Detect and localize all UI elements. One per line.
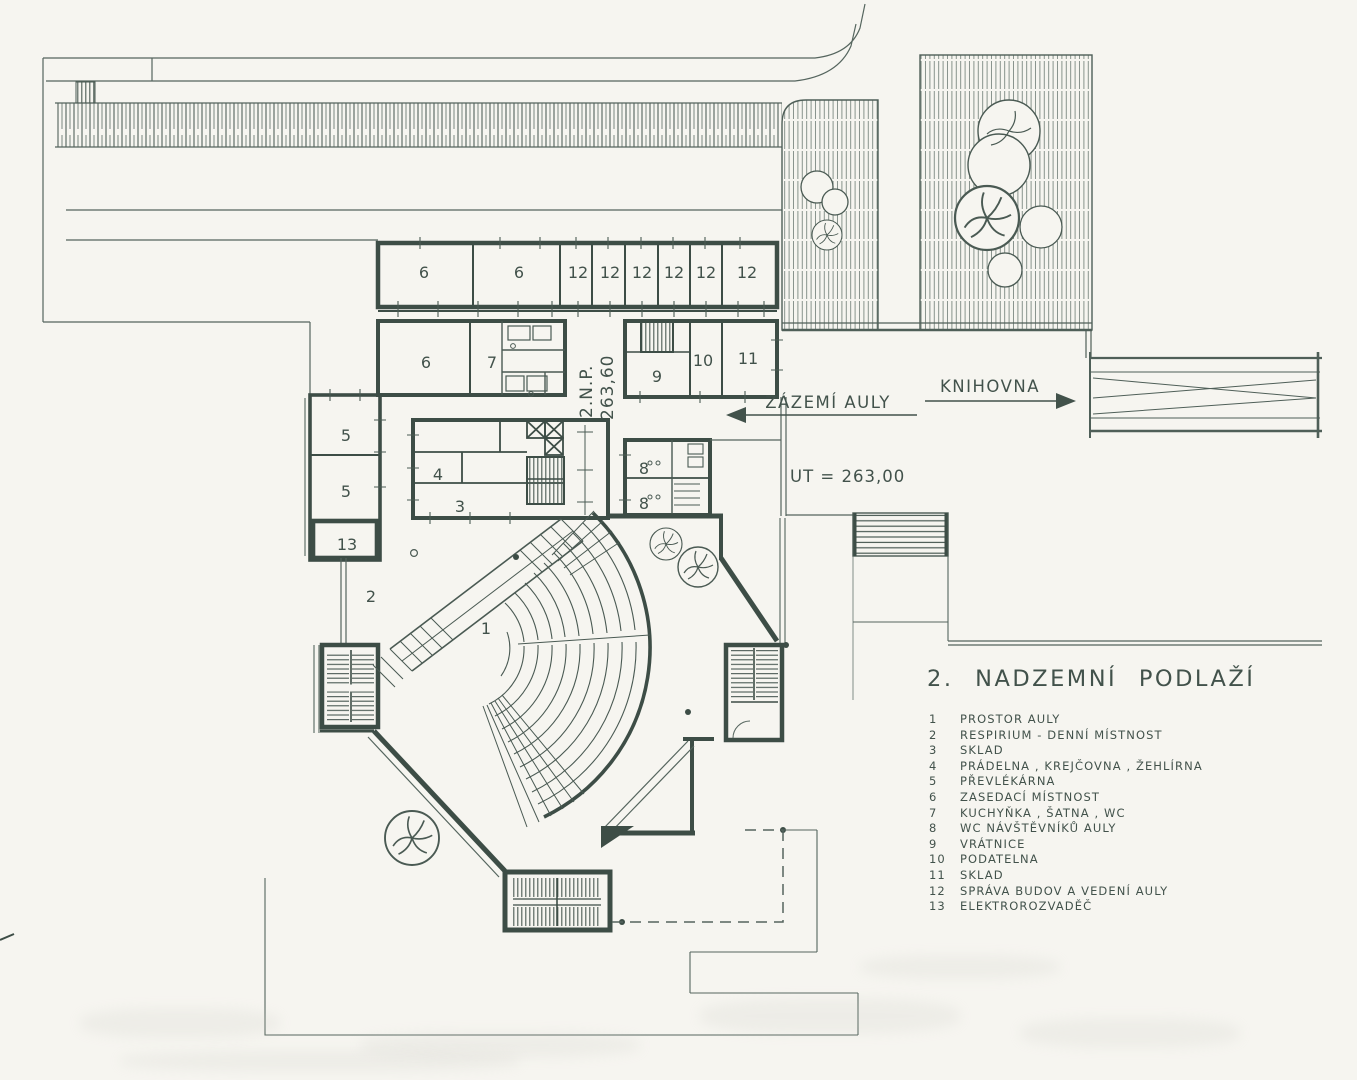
room-number: 10 xyxy=(693,351,713,370)
legend-number: 12 xyxy=(929,884,960,900)
floor-plan-drawing: 2.N.P. 263,60 ZÁZEMÍ AULY KNIHOVNA UT = … xyxy=(0,0,1357,1080)
room-number: 12 xyxy=(600,263,620,282)
room-number: 6 xyxy=(419,263,429,282)
legend-label: PŘEVLÉKÁRNA xyxy=(960,774,1056,790)
road-hatch-strip xyxy=(55,103,782,147)
floor-plan-sheet: 2.N.P. 263,60 ZÁZEMÍ AULY KNIHOVNA UT = … xyxy=(0,0,1357,1080)
wc-block xyxy=(619,440,710,515)
aula-planting xyxy=(385,528,789,925)
legend-number: 7 xyxy=(929,806,960,822)
scan-noise xyxy=(80,1008,280,1038)
room-number: 12 xyxy=(696,263,716,282)
scan-noise xyxy=(860,955,1060,979)
library-bridge xyxy=(1090,352,1322,438)
room-number: 2 xyxy=(366,587,376,606)
room-number: 5 xyxy=(341,482,351,501)
legend-item: 2RESPIRIUM - DENNÍ MÍSTNOST xyxy=(929,728,1203,744)
legend-label: RESPIRIUM - DENNÍ MÍSTNOST xyxy=(960,728,1163,744)
legend-item: 7KUCHYŇKA , ŠATNA , WC xyxy=(929,806,1203,822)
entrance-steps xyxy=(853,513,948,556)
legend-item: 1PROSTOR AULY xyxy=(929,712,1203,728)
room-number: 3 xyxy=(455,497,465,516)
arrow-right-icon xyxy=(1056,393,1076,409)
legend-number: 6 xyxy=(929,790,960,806)
legend: 1PROSTOR AULY 2RESPIRIUM - DENNÍ MÍSTNOS… xyxy=(929,712,1203,915)
scan-noise xyxy=(1020,1018,1240,1048)
room-number: 6 xyxy=(421,353,431,372)
room-number: 13 xyxy=(337,535,357,554)
legend-item: 8WC NÁVŠTĚVNÍKŮ AULY xyxy=(929,821,1203,837)
terrain-level-label: UT = 263,00 xyxy=(790,467,905,486)
scan-noise xyxy=(120,1050,520,1072)
block-6-7 xyxy=(378,321,565,396)
legend-item: 9VRÁTNICE xyxy=(929,837,1203,853)
legend-label: WC NÁVŠTĚVNÍKŮ AULY xyxy=(960,821,1117,837)
legend-number: 5 xyxy=(929,774,960,790)
legend-number: 2 xyxy=(929,728,960,744)
page-title: 2. NADZEMNÍ PODLAŽÍ xyxy=(927,666,1255,692)
legend-item: 6ZASEDACÍ MÍSTNOST xyxy=(929,790,1203,806)
legend-item: 3SKLAD xyxy=(929,743,1203,759)
room-number: 4 xyxy=(433,465,443,484)
room-number: 9 xyxy=(652,367,662,386)
legend-item: 5PŘEVLÉKÁRNA xyxy=(929,774,1203,790)
legend-label: PROSTOR AULY xyxy=(960,712,1060,728)
legend-label: KUCHYŇKA , ŠATNA , WC xyxy=(960,806,1126,822)
legend-label: SKLAD xyxy=(960,743,1004,759)
legend-number: 3 xyxy=(929,743,960,759)
legend-item: 11SKLAD xyxy=(929,868,1203,884)
room-number: 11 xyxy=(738,349,758,368)
legend-number: 9 xyxy=(929,837,960,853)
legend-item: 4PRÁDELNA , KREJČOVNA , ŽEHLÍRNA xyxy=(929,759,1203,775)
legend-label: PODATELNA xyxy=(960,852,1039,868)
backstage-label: ZÁZEMÍ AULY xyxy=(765,393,891,412)
floor-elevation-label: 263,60 xyxy=(598,355,618,420)
legend-label: SKLAD xyxy=(960,868,1004,884)
legend-label: VRÁTNICE xyxy=(960,837,1025,853)
legend-number: 8 xyxy=(929,821,960,837)
pencil-mark xyxy=(0,934,14,940)
legend-label: SPRÁVA BUDOV A VEDENÍ AULY xyxy=(960,884,1168,900)
room-number: 7 xyxy=(487,353,497,372)
legend-item: 13ELEKTROROZVADĚČ xyxy=(929,899,1203,915)
garden-left xyxy=(782,100,878,330)
scan-noise xyxy=(700,998,960,1034)
legend-number: 4 xyxy=(929,759,960,775)
site-roads xyxy=(43,4,865,398)
room-number: 1 xyxy=(481,619,491,638)
library-label: KNIHOVNA xyxy=(940,377,1040,396)
room-number: 8 xyxy=(639,459,649,478)
room-number: 12 xyxy=(568,263,588,282)
legend-number: 13 xyxy=(929,899,960,915)
legend-item: 12SPRÁVA BUDOV A VEDENÍ AULY xyxy=(929,884,1203,900)
entrance-area xyxy=(710,397,1322,700)
legend-number: 10 xyxy=(929,852,960,868)
legend-item: 10PODATELNA xyxy=(929,852,1203,868)
legend-label: ELEKTROROZVADĚČ xyxy=(960,899,1092,915)
legend-number: 1 xyxy=(929,712,960,728)
legend-label: ZASEDACÍ MÍSTNOST xyxy=(960,790,1100,806)
crosswalk-mark xyxy=(76,82,95,103)
room-number: 6 xyxy=(514,263,524,282)
canopy-dashed-line xyxy=(612,830,783,922)
floor-mark-label: 2.N.P. xyxy=(577,365,597,418)
garden-areas xyxy=(782,55,1092,358)
room-number: 5 xyxy=(341,426,351,445)
legend-number: 11 xyxy=(929,868,960,884)
room-number: 8 xyxy=(639,494,649,513)
room-number: 12 xyxy=(664,263,684,282)
legend-label: PRÁDELNA , KREJČOVNA , ŽEHLÍRNA xyxy=(960,759,1203,775)
room-number: 12 xyxy=(632,263,652,282)
room-number: 12 xyxy=(737,263,757,282)
arrow-left-icon xyxy=(726,407,746,423)
